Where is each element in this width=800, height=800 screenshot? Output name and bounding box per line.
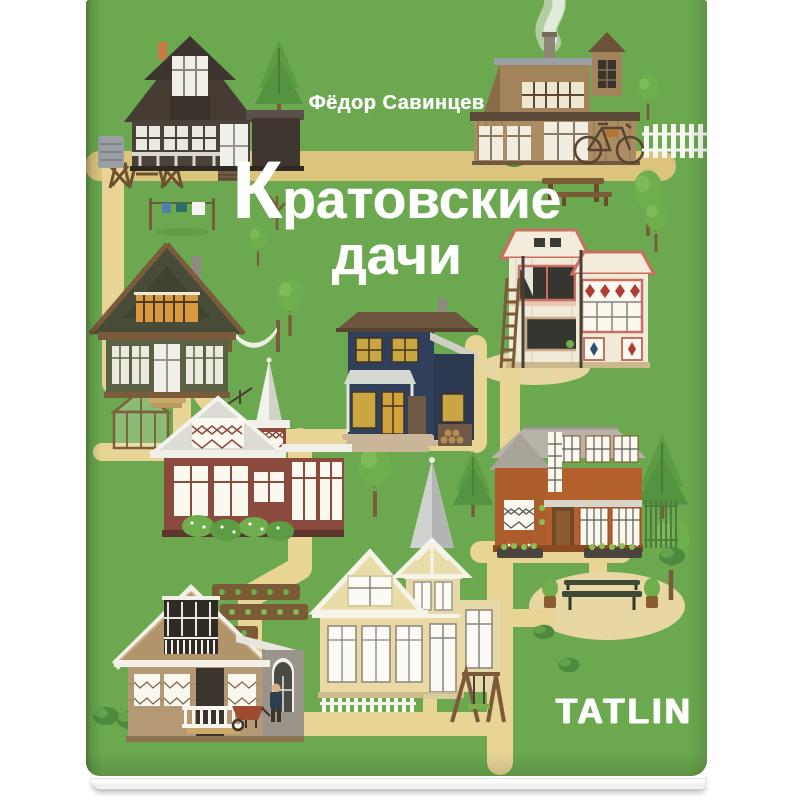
author-name: Фёдор Савинцев bbox=[86, 92, 707, 115]
title-line-1: Кратовские bbox=[86, 150, 707, 232]
potted-plant bbox=[542, 578, 558, 608]
publisher-logo: TATLIN bbox=[556, 692, 693, 732]
house-navy-center bbox=[336, 298, 478, 452]
book-cover: Фёдор Савинцев Кратовские дачи TATLIN bbox=[86, 0, 707, 776]
cover-illustration bbox=[86, 0, 707, 776]
book-title: Кратовские дачи bbox=[86, 150, 707, 283]
title-line-1-rest: ратовские bbox=[282, 168, 561, 230]
potted-plant bbox=[644, 578, 660, 608]
title-line-2: дачи bbox=[86, 228, 707, 283]
title-initial-letter: К bbox=[232, 145, 282, 236]
book-photo: Фёдор Савинцев Кратовские дачи TATLIN bbox=[0, 0, 800, 800]
